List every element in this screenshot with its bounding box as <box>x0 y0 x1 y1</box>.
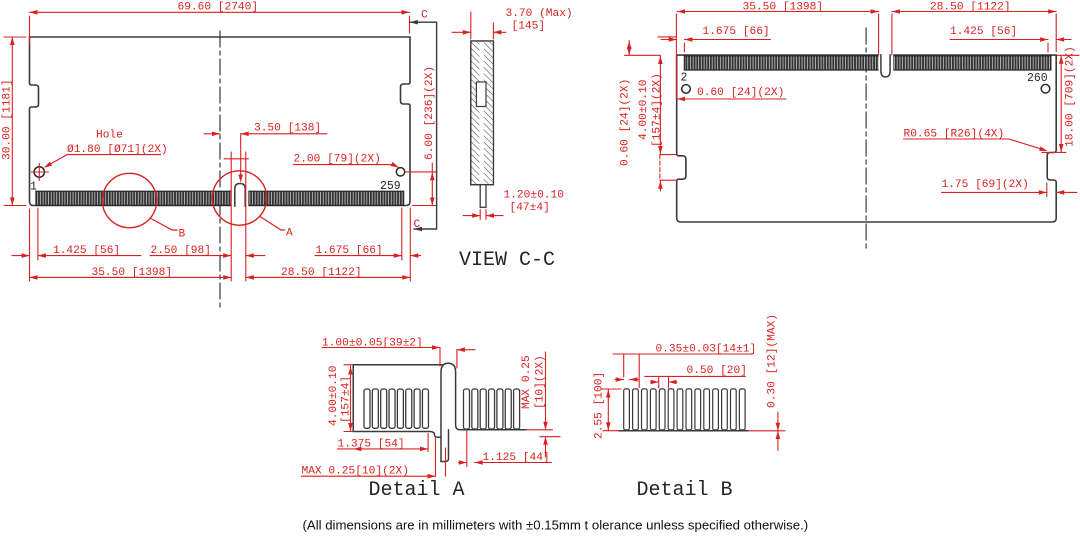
svg-text:(All dimensions are in millime: (All dimensions are in millimeters with … <box>303 518 809 533</box>
svg-text:30.00 [1181]: 30.00 [1181] <box>2 79 14 160</box>
svg-text:1.675 [66]: 1.675 [66] <box>703 26 770 38</box>
svg-text:260: 260 <box>1027 72 1048 85</box>
svg-text:3.70 (Max): 3.70 (Max) <box>506 8 573 20</box>
svg-text:C: C <box>414 219 421 231</box>
svg-text:1.20±0.10: 1.20±0.10 <box>504 190 565 202</box>
svg-text:0.50 [20]: 0.50 [20] <box>687 365 747 377</box>
svg-text:2.00 [79](2X): 2.00 [79](2X) <box>294 154 381 166</box>
svg-text:2: 2 <box>681 72 688 85</box>
svg-text:[157±4](2X): [157±4](2X) <box>652 73 664 147</box>
svg-text:1: 1 <box>30 181 37 194</box>
svg-text:Hole: Hole <box>96 130 123 142</box>
svg-text:3.50 [138]: 3.50 [138] <box>254 123 321 135</box>
svg-text:18.00 [709](2X): 18.00 [709](2X) <box>1065 46 1077 147</box>
svg-text:0.60 [24](2X): 0.60 [24](2X) <box>620 79 632 166</box>
svg-text:69.60 [2740]: 69.60 [2740] <box>178 2 259 14</box>
svg-text:Detail B: Detail B <box>637 479 733 502</box>
svg-text:Detail A: Detail A <box>369 479 465 502</box>
svg-text:2.55 [100]: 2.55 [100] <box>594 372 606 439</box>
svg-text:1.675 [66]: 1.675 [66] <box>316 245 383 257</box>
svg-text:6.00 [236](2X): 6.00 [236](2X) <box>424 66 436 160</box>
svg-text:[10](2X): [10](2X) <box>535 355 547 409</box>
svg-text:1.425 [56]: 1.425 [56] <box>53 245 120 257</box>
svg-text:A: A <box>286 228 293 240</box>
svg-text:MAX 0.25[10](2X): MAX 0.25[10](2X) <box>302 465 409 477</box>
svg-text:259: 259 <box>380 180 401 193</box>
svg-text:1.425 [56]: 1.425 [56] <box>950 26 1017 38</box>
svg-text:4.00±0.10: 4.00±0.10 <box>328 365 340 426</box>
svg-text:0.60 [24](2X): 0.60 [24](2X) <box>697 87 784 99</box>
svg-text:[145]: [145] <box>512 21 546 33</box>
svg-text:MAX 0.25: MAX 0.25 <box>521 355 533 409</box>
svg-text:B: B <box>179 229 186 241</box>
svg-text:VIEW C-C: VIEW C-C <box>459 249 555 272</box>
svg-text:0.30 [12](MAX): 0.30 [12](MAX) <box>767 314 779 408</box>
svg-text:4.00±0.10: 4.00±0.10 <box>638 79 650 140</box>
svg-text:C: C <box>421 10 428 22</box>
svg-text:1.75 [69](2X): 1.75 [69](2X) <box>942 179 1029 191</box>
svg-text:[47±4]: [47±4] <box>510 202 550 214</box>
